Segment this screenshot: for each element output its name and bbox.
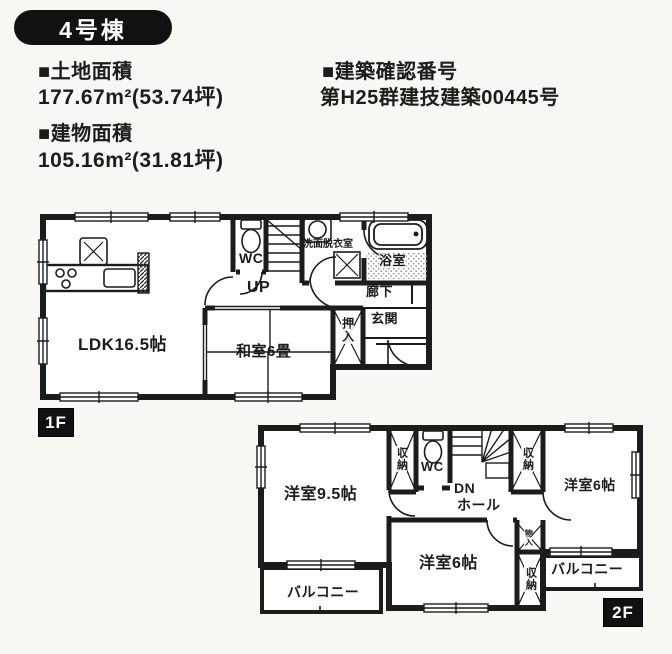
- room-label-rouka: 廊下: [366, 285, 393, 299]
- stairs-down-label: DN: [454, 481, 475, 496]
- room-label-balcony-left: バルコニー: [287, 585, 359, 600]
- room-label-hall: ホール: [457, 498, 501, 513]
- floor-badge-1f: 1F: [38, 408, 74, 437]
- floor-badge-2f: 2F: [603, 598, 643, 627]
- room-label-wc-2f: WC: [421, 460, 444, 474]
- room-label-west6-right: 洋室6帖: [564, 478, 616, 493]
- room-label-genkan: 玄関: [371, 312, 398, 326]
- room-label-bath: 浴室: [379, 254, 406, 268]
- room-label-wc-1f: WC: [239, 251, 263, 266]
- confirmation-number-label: ■建築確認番号: [322, 62, 458, 83]
- room-label-storage-bottom: 収納: [524, 566, 536, 592]
- kitchen-wall-stub: [138, 253, 149, 293]
- room-label-oshiire: 押入: [341, 316, 354, 344]
- building-area-label: ■建物面積: [38, 124, 133, 145]
- building-area-value: 105.16m²(31.81坪): [38, 150, 223, 172]
- building-number-badge: 4号棟: [14, 10, 172, 45]
- room-label-ldk: LDK16.5帖: [78, 336, 167, 354]
- room-label-storage-left: 収納: [395, 446, 407, 472]
- land-area-label: ■土地面積: [38, 62, 133, 83]
- room-label-washitsu: 和室6畳: [236, 344, 291, 360]
- confirmation-number-value: 第H25群建技建築00445号: [320, 88, 560, 109]
- room-label-senmen: 洗面脱衣室: [303, 240, 353, 251]
- stairs-up-label: UP: [247, 280, 270, 297]
- land-area-value: 177.67m²(53.74坪): [38, 87, 223, 109]
- room-label-west95: 洋室9.5帖: [284, 487, 357, 504]
- floor-1f-plan: [37, 211, 429, 403]
- room-label-monoire: 物入: [524, 528, 532, 548]
- room-label-storage-right: 収納: [521, 446, 533, 472]
- floorplan-flyer-page: { "colors": { "ink": "#1c1c1c", "badge_b…: [0, 0, 672, 654]
- bathtub-icon: [369, 220, 427, 249]
- room-label-balcony-right: バルコニー: [551, 562, 623, 577]
- room-label-west6-bottom: 洋室6帖: [419, 556, 478, 573]
